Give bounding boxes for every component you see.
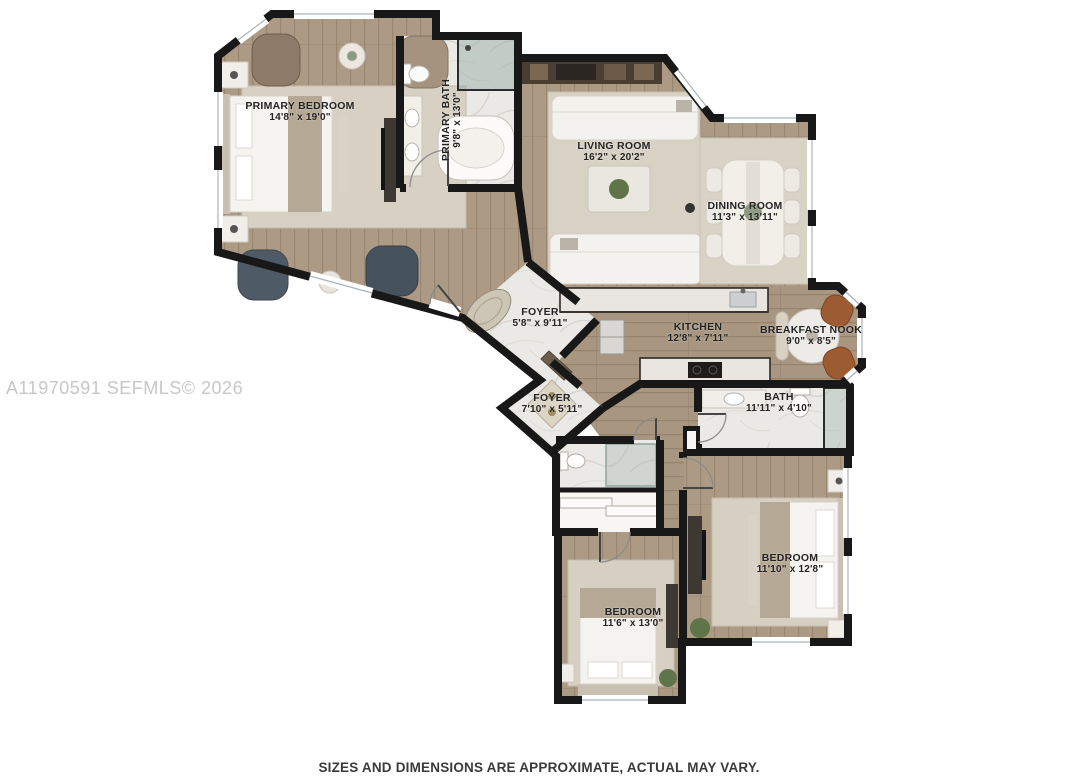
plant-icon <box>690 618 710 638</box>
sink-icon <box>724 393 744 405</box>
toilet-icon <box>567 454 585 468</box>
mls-watermark: A11970591 SEFMLS© 2026 <box>6 378 243 399</box>
dining-chair <box>706 168 722 192</box>
pillow <box>236 156 252 200</box>
bed-blanket <box>288 96 322 212</box>
shower-glass <box>606 444 656 486</box>
plant-icon <box>609 179 629 199</box>
bench <box>776 312 788 360</box>
table-pedestal <box>806 330 818 342</box>
bedroom3-furniture <box>560 560 678 696</box>
tv-console <box>384 118 396 202</box>
sink-icon <box>405 109 419 127</box>
pillow <box>676 100 692 112</box>
faucet <box>741 289 746 294</box>
shelf <box>604 64 626 80</box>
floor-lamp <box>685 203 695 213</box>
bed-blanket <box>580 588 656 618</box>
pillow <box>560 238 578 250</box>
lamp <box>230 71 238 79</box>
armchair <box>252 34 300 86</box>
lamp <box>230 225 238 233</box>
pillow <box>588 662 618 678</box>
sink-icon <box>405 143 419 161</box>
bed-headboard <box>578 684 658 696</box>
shower-icon <box>824 388 848 450</box>
dining-chair <box>706 200 722 224</box>
lamp <box>836 478 843 485</box>
tv-icon <box>702 530 706 580</box>
dining-chair <box>784 234 800 258</box>
plant-icon <box>659 669 677 687</box>
bed-bench <box>338 116 348 192</box>
rug-medallion <box>548 408 556 416</box>
sink-icon <box>730 292 756 307</box>
toilet-icon <box>409 66 429 82</box>
dining-chair <box>784 200 800 224</box>
pillow <box>622 662 652 678</box>
shower-head <box>465 45 471 51</box>
tv-icon <box>556 64 596 80</box>
shelf <box>634 64 654 80</box>
pillow <box>816 510 834 556</box>
toilet-tank <box>790 388 810 395</box>
centerpiece <box>744 203 762 221</box>
dining-chair <box>784 168 800 192</box>
rug-medallion <box>548 392 556 400</box>
pillow <box>236 104 252 148</box>
closet-door <box>606 506 658 516</box>
dresser <box>688 516 702 594</box>
closet-door <box>560 498 612 508</box>
floor-plan-page: PRIMARY BEDROOM 14'8" x 19'0" PRIMARY BA… <box>0 0 1078 782</box>
bed-bench <box>748 514 758 606</box>
toilet-icon <box>791 395 809 417</box>
bed-blanket <box>760 502 790 618</box>
tv-icon <box>381 128 385 190</box>
dining-chair <box>706 234 722 258</box>
dining-room-furniture <box>700 138 808 284</box>
bathtub-basin <box>448 128 504 168</box>
dresser <box>666 584 678 648</box>
closet-inner <box>687 431 696 449</box>
armchair <box>366 246 418 296</box>
disclaimer-text: SIZES AND DIMENSIONS ARE APPROXIMATE, AC… <box>0 760 1078 775</box>
pillow <box>816 562 834 608</box>
nightstand <box>560 664 574 682</box>
decor <box>347 51 357 61</box>
living-room-furniture <box>522 60 702 284</box>
shelf <box>530 64 548 80</box>
